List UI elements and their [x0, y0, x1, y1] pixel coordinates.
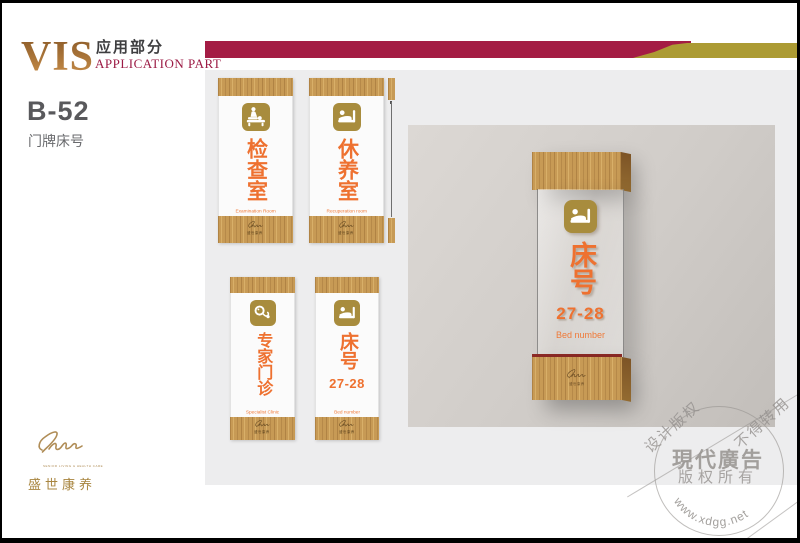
- patient-bed-icon: [334, 300, 360, 326]
- render-subtitle: Bed number: [556, 330, 605, 340]
- sign-title: 专家门诊: [254, 332, 272, 396]
- brand-block: SENIOR LIVING & HEALTH CARE 盛世康养: [24, 428, 100, 493]
- brand-name: 盛世康养: [569, 381, 584, 386]
- side-view-wood-bottom: [388, 218, 395, 243]
- mini-brand-logo: 盛世康养: [315, 417, 379, 440]
- brand-name: 盛世康养: [339, 429, 354, 434]
- sign-wood-top: [309, 78, 384, 96]
- sign-face: 专家门诊 Specialist Clinic: [230, 293, 295, 417]
- brand-name: 盛世康养: [24, 474, 100, 493]
- bed-number-value: 27-28: [329, 376, 365, 391]
- stethoscope-icon: [250, 300, 276, 326]
- sign-examination-room: 检查室 Examination Room 盛世康养: [218, 78, 293, 243]
- sign-face: 床号 27-28 Bed number: [315, 293, 379, 417]
- sign-face: 休养室 Recuperation room: [309, 96, 384, 216]
- render-acrylic-panel: 床号 27-28 Bed number: [537, 189, 624, 357]
- sign-recuperation-room: 休养室 Recuperation room 盛世康养: [309, 78, 384, 243]
- sign-title: 检查室: [245, 138, 267, 201]
- patient-bed-icon: [564, 200, 597, 233]
- render-bed-number: 27-28: [556, 304, 604, 324]
- side-view-acrylic-edge: [391, 102, 392, 217]
- brand-name: 盛世康养: [255, 429, 270, 434]
- section-title-en: APPLICATION PART: [95, 56, 221, 72]
- section-title-cn: 应用部分: [96, 36, 164, 57]
- render-wood-header-side: [621, 152, 631, 192]
- sign-bed-number: 床号 27-28 Bed number 盛世康养: [315, 277, 379, 440]
- sign-side-view: [388, 78, 395, 243]
- sign-title: 床号: [336, 332, 358, 370]
- sign-wood-bottom: 盛世康养: [315, 417, 379, 440]
- sign-specialist-clinic: 专家门诊 Specialist Clinic 盛世康养: [230, 277, 295, 440]
- sign-wood-bottom: 盛世康养: [230, 417, 295, 440]
- sign-wood-top: [230, 277, 295, 293]
- brand-signature-icon: [30, 428, 94, 462]
- vis-manual-page: VIS 应用部分 APPLICATION PART B-52 门牌床号 SENI…: [0, 0, 800, 543]
- brand-name: 盛世康养: [339, 230, 354, 235]
- item-code: B-52: [27, 96, 90, 127]
- sign-subtitle: Recuperation room: [326, 209, 366, 214]
- sign-subtitle: Examination Room: [235, 209, 275, 214]
- brand-tagline: SENIOR LIVING & HEALTH CARE: [43, 465, 81, 468]
- side-view-wood-top: [388, 78, 395, 100]
- sign-face: 检查室 Examination Room: [218, 96, 293, 216]
- mini-brand-logo: 盛世康养: [230, 417, 295, 440]
- sign-wood-bottom: 盛世康养: [309, 216, 384, 243]
- sign-wood-top: [218, 78, 293, 96]
- render-wood-footer: 盛世康养: [532, 357, 622, 400]
- watermark-line: [723, 485, 800, 543]
- sign-wood-top: [315, 277, 379, 293]
- sign-photo-render: 床号 27-28 Bed number 盛世康养: [408, 125, 775, 427]
- sign-wood-bottom: 盛世康养: [218, 216, 293, 243]
- svg-text:www.xdgg.net: www.xdgg.net: [670, 494, 751, 529]
- sign-title: 休养室: [336, 138, 358, 201]
- sign-subtitle: Specialist Clinic: [246, 410, 279, 415]
- mini-brand-logo: 盛世康养: [218, 216, 293, 243]
- render-wood-footer-side: [622, 357, 631, 402]
- vis-logo: VIS: [21, 36, 94, 78]
- header-red-bar: [205, 41, 691, 58]
- patient-bed-icon: [333, 103, 361, 131]
- render-wood-header: [532, 152, 621, 190]
- mini-brand-logo: 盛世康养: [309, 216, 384, 243]
- render-title: 床号: [564, 241, 597, 295]
- brand-name: 盛世康养: [248, 230, 263, 235]
- exam-table-icon: [242, 103, 270, 131]
- brand-signature-icon: [557, 368, 597, 382]
- sign-subtitle: Bed number: [334, 410, 360, 415]
- item-name: 门牌床号: [28, 131, 84, 151]
